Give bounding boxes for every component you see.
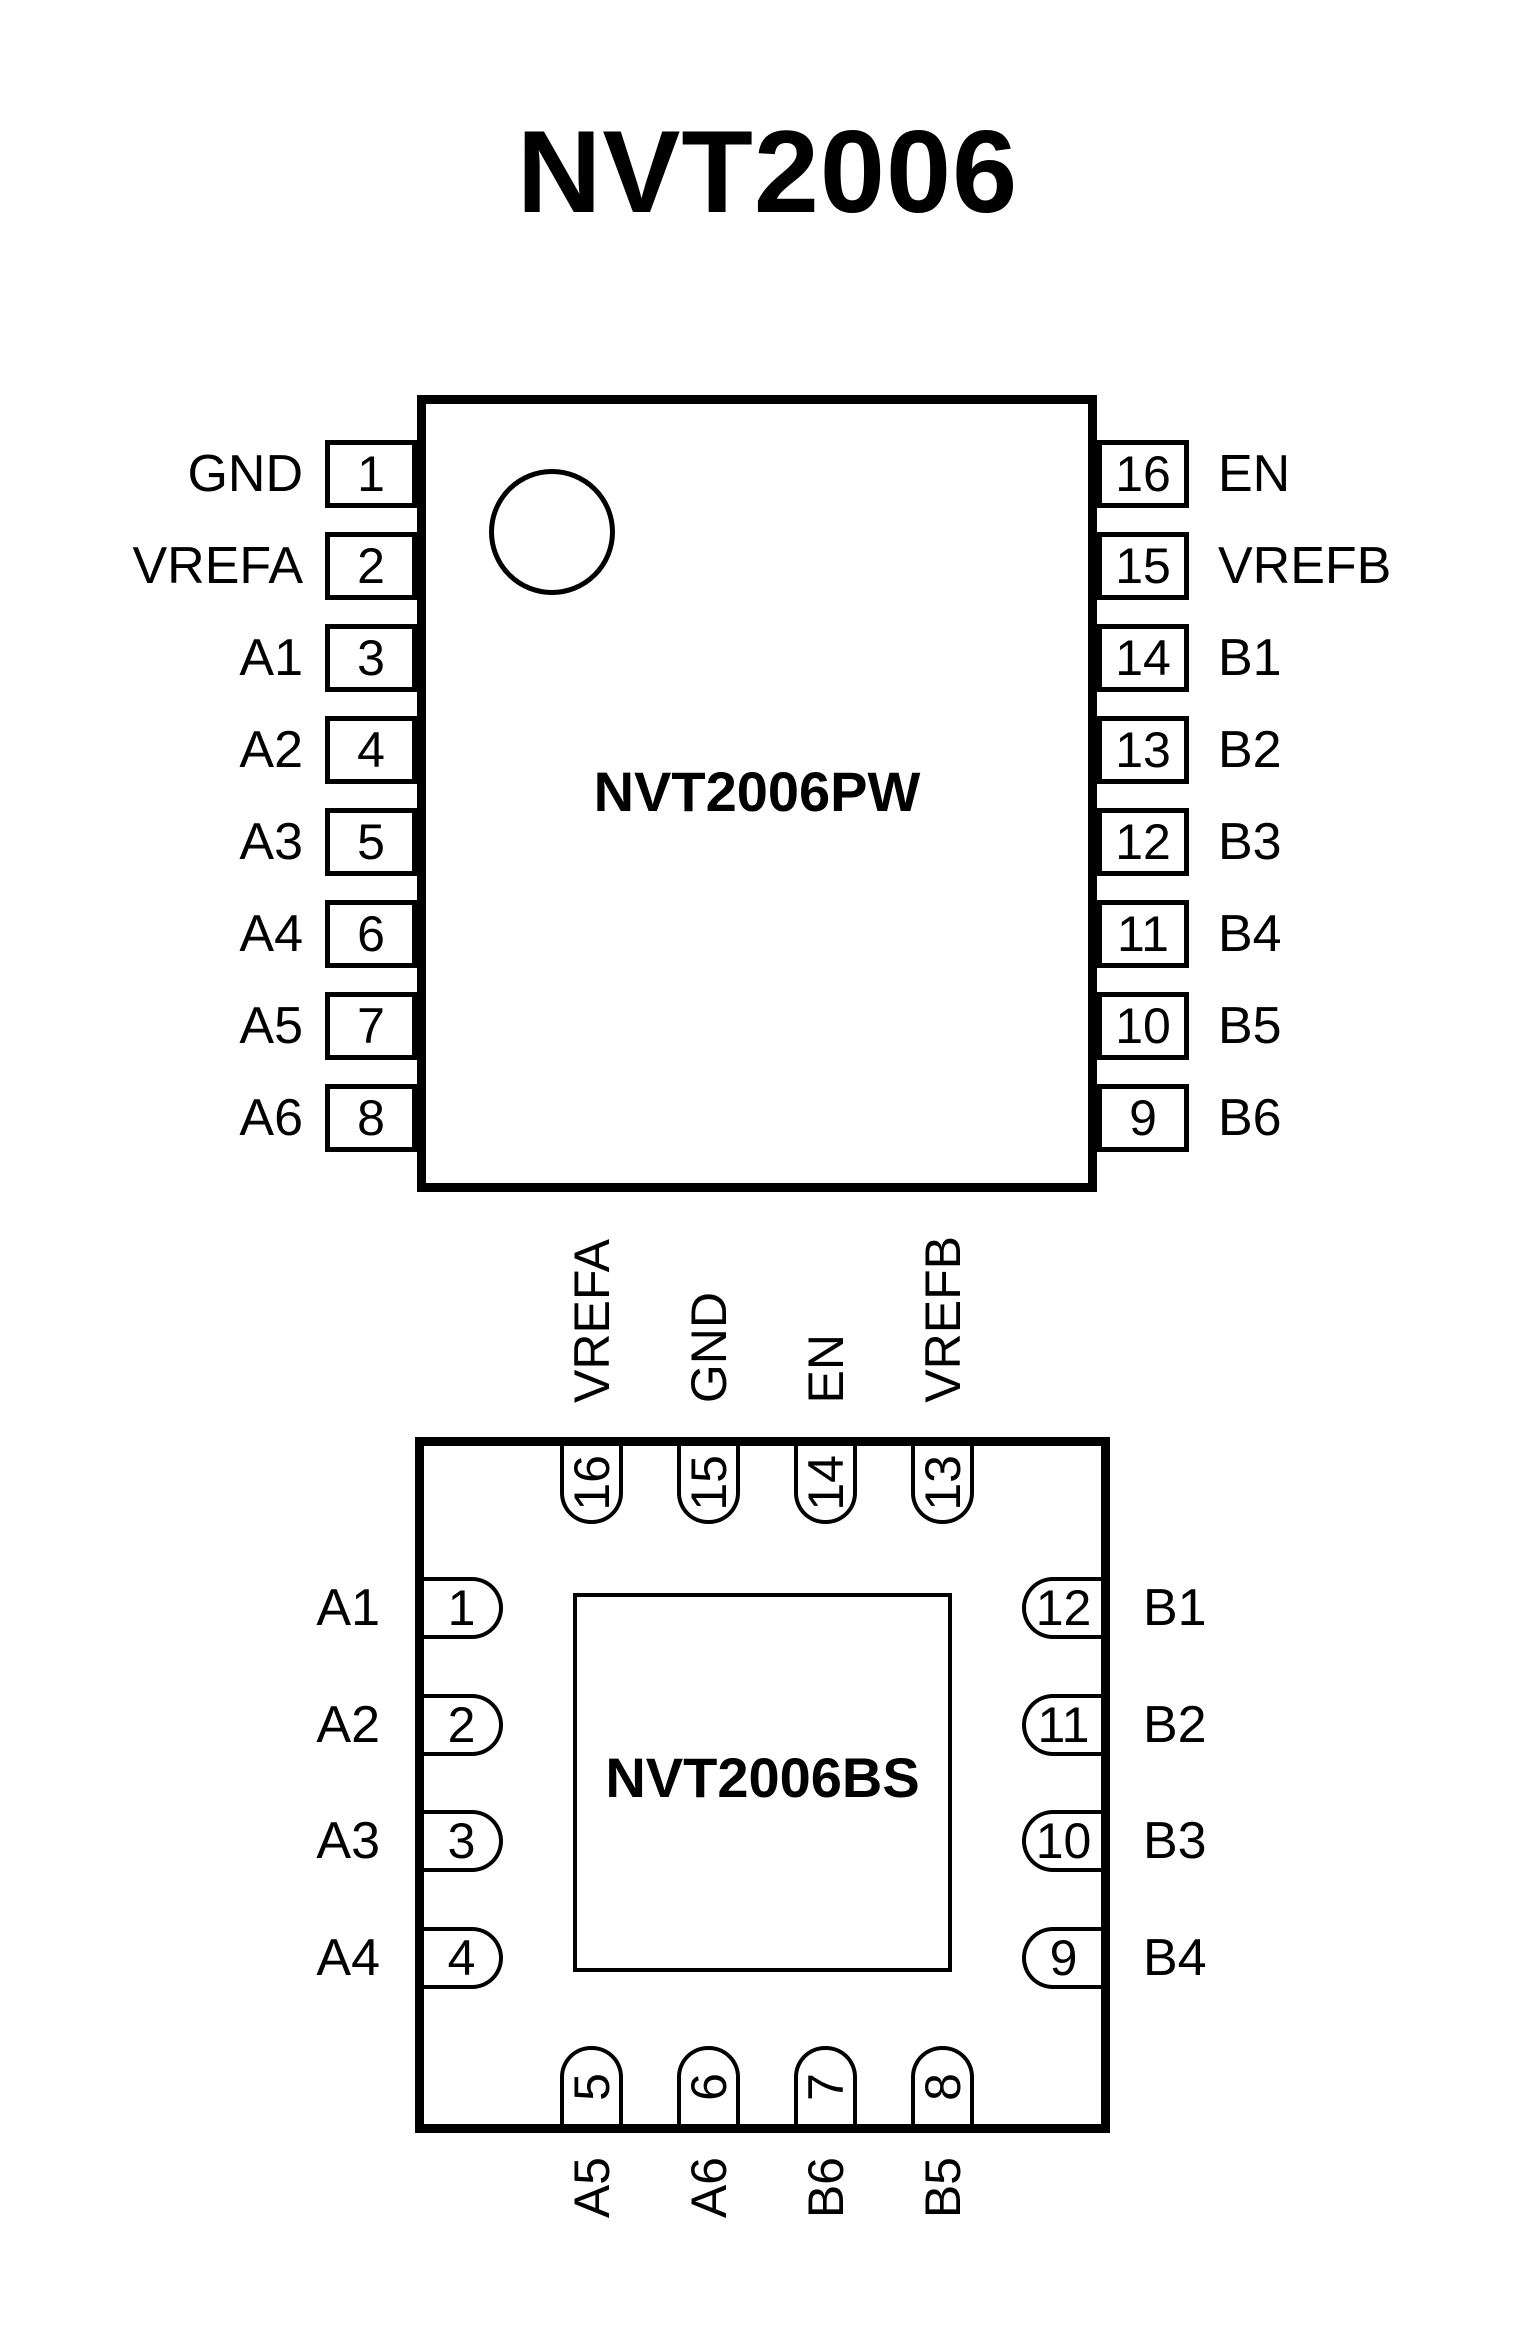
bs-pin-2-label: A2: [0, 1694, 380, 1756]
pin-number: 6: [357, 905, 385, 963]
pin-number: 1: [357, 445, 385, 503]
pw-pin-8-label: A6: [0, 1084, 303, 1152]
pw-pin-10: 10: [1097, 992, 1189, 1060]
bs-pin-1-label: A1: [0, 1577, 380, 1639]
bs-pin-14-label: EN: [801, 1334, 851, 1403]
bs-pin-6: 6: [677, 2046, 740, 2124]
pin-number: 4: [448, 1929, 476, 1987]
pw-pin-14: 14: [1097, 624, 1189, 692]
page-title: NVT2006: [0, 112, 1535, 232]
bs-pin-12-label: B1: [1143, 1577, 1453, 1639]
pw-pin-10-label: B5: [1218, 992, 1528, 1060]
pin1-indicator-icon: [489, 469, 615, 595]
pw-pin-5: 5: [325, 808, 417, 876]
pin-number: 5: [357, 813, 385, 871]
pw-pin-11: 11: [1097, 900, 1189, 968]
pin-number: 6: [684, 2073, 734, 2101]
pw-pin-3: 3: [325, 624, 417, 692]
pw-pin-16-label: EN: [1218, 440, 1528, 508]
bs-pin-16: 16: [560, 1446, 623, 1524]
bs-pin-15: 15: [677, 1446, 740, 1524]
pw-pin-13: 13: [1097, 716, 1189, 784]
pin-number: 11: [1117, 905, 1169, 963]
bs-pin-13-label: VREFB: [918, 1236, 968, 1403]
pin-number: 16: [1115, 445, 1171, 503]
bs-pin-5: 5: [560, 2046, 623, 2124]
bs-pin-10-label: B3: [1143, 1810, 1453, 1872]
pin-number: 2: [448, 1696, 476, 1754]
pin-number: 2: [357, 537, 385, 595]
pw-pin-2-label: VREFA: [0, 532, 303, 600]
pw-pin-9: 9: [1097, 1084, 1189, 1152]
pw-pin-13-label: B2: [1218, 716, 1528, 784]
pw-pin-1-label: GND: [0, 440, 303, 508]
pin-number: 3: [448, 1812, 476, 1870]
bs-pin-12: 12: [1022, 1577, 1101, 1639]
bs-pin-9: 9: [1022, 1927, 1101, 1989]
bs-pin-8: 8: [911, 2046, 974, 2124]
pin-number: 12: [1036, 1579, 1092, 1637]
pw-pin-6-label: A4: [0, 900, 303, 968]
bs-pin-11-label: B2: [1143, 1694, 1453, 1756]
bs-part-label: NVT2006BS: [573, 1750, 952, 1806]
pin-number: 10: [1036, 1812, 1092, 1870]
pw-pin-12: 12: [1097, 808, 1189, 876]
pin-number: 8: [357, 1089, 385, 1147]
bs-pin-15-label: GND: [684, 1292, 734, 1403]
pinout-figure: NVT2006 NVT2006PW 1 2 3 4 5 6 7 8 GND VR…: [0, 0, 1535, 2342]
pw-pin-7-label: A5: [0, 992, 303, 1060]
pin-number: 1: [448, 1579, 476, 1637]
bs-pin-10: 10: [1022, 1810, 1101, 1872]
bs-pin-14: 14: [794, 1446, 857, 1524]
bs-pin-8-label: B5: [918, 2157, 968, 2218]
pw-pin-15-label: VREFB: [1218, 532, 1528, 600]
bs-pin-5-label: A5: [567, 2157, 617, 2218]
pin-number: 4: [357, 721, 385, 779]
pw-pin-6: 6: [325, 900, 417, 968]
bs-pin-2: 2: [424, 1694, 503, 1756]
pin-number: 12: [1115, 813, 1171, 871]
bs-pin-9-label: B4: [1143, 1927, 1453, 1989]
pw-pin-9-label: B6: [1218, 1084, 1528, 1152]
bs-pin-7-label: B6: [801, 2157, 851, 2218]
pw-pin-5-label: A3: [0, 808, 303, 876]
pin-number: 14: [801, 1455, 851, 1511]
pin-number: 8: [918, 2073, 968, 2101]
pw-pin-3-label: A1: [0, 624, 303, 692]
bs-pin-3: 3: [424, 1810, 503, 1872]
pin-number: 16: [567, 1455, 617, 1511]
pin-number: 13: [1115, 721, 1171, 779]
pw-part-label: NVT2006PW: [417, 764, 1097, 820]
pin-number: 9: [1050, 1929, 1078, 1987]
bs-pin-3-label: A3: [0, 1810, 380, 1872]
pw-pin-4: 4: [325, 716, 417, 784]
pw-pin-8: 8: [325, 1084, 417, 1152]
bs-pin-16-label: VREFA: [567, 1239, 617, 1403]
bs-pin-6-label: A6: [684, 2157, 734, 2218]
bs-pin-11: 11: [1022, 1694, 1101, 1756]
pw-pin-14-label: B1: [1218, 624, 1528, 692]
pw-pin-4-label: A2: [0, 716, 303, 784]
bs-pin-4: 4: [424, 1927, 503, 1989]
bs-pin-4-label: A4: [0, 1927, 380, 1989]
pw-pin-11-label: B4: [1218, 900, 1528, 968]
pw-pin-16: 16: [1097, 440, 1189, 508]
bs-pin-7: 7: [794, 2046, 857, 2124]
pin-number: 7: [357, 997, 385, 1055]
pw-pin-2: 2: [325, 532, 417, 600]
pw-pin-15: 15: [1097, 532, 1189, 600]
pw-pin-1: 1: [325, 440, 417, 508]
pin-number: 7: [801, 2073, 851, 2101]
pin-number: 11: [1038, 1696, 1090, 1754]
pin-number: 5: [567, 2073, 617, 2101]
pin-number: 14: [1115, 629, 1171, 687]
pin-number: 13: [918, 1455, 968, 1511]
pin-number: 10: [1115, 997, 1171, 1055]
pw-pin-12-label: B3: [1218, 808, 1528, 876]
bs-pin-13: 13: [911, 1446, 974, 1524]
pw-pin-7: 7: [325, 992, 417, 1060]
bs-pin-1: 1: [424, 1577, 503, 1639]
pin-number: 9: [1129, 1089, 1157, 1147]
pin-number: 3: [357, 629, 385, 687]
pin-number: 15: [684, 1455, 734, 1511]
pin-number: 15: [1115, 537, 1171, 595]
